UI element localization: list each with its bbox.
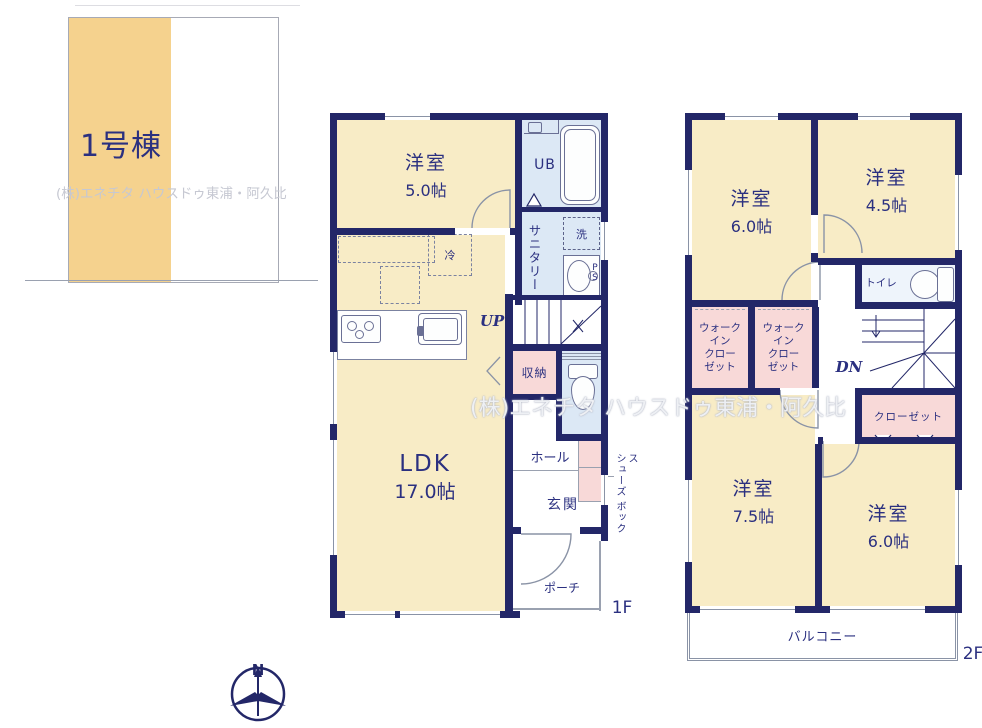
room-size: 6.0帖 [868,528,909,552]
sanitary-text: サニタリー [525,224,544,292]
balcony-label: バルコニー [788,626,858,645]
washer-dashed-box: 洗 [563,217,600,250]
shoebox-label: シューズ ボックス [613,453,637,545]
wall [515,120,522,305]
toilet-text: トイレ [865,275,897,290]
ub-counter [524,120,559,134]
door-arc-se-room [823,441,859,477]
room-2f-wic2: ウォーク イン クロー ゼット [755,307,812,388]
stove-icon [341,315,381,343]
window [385,113,430,120]
window [400,611,500,618]
window [685,480,692,562]
wall [522,207,601,212]
room-1f-ldk [337,235,505,611]
floor-plan-page: 1号棟 (株)エネチタ ハウスドゥ東浦・阿久比 洋室 5.0帖 LDK 17.0… [0,0,982,728]
wall [811,120,818,215]
outer-wall-top [330,113,608,120]
north-label: N [252,661,265,679]
window [858,113,910,120]
wall [748,307,755,388]
window [725,113,778,120]
watermark-plans: (株)エネチタ ハウスドゥ東浦・阿久比 [470,390,846,422]
room-size: 7.5帖 [733,503,774,527]
fridge-label: 冷 [445,247,456,263]
room-name: 洋室 [867,499,909,526]
wic2-hanger-dashes [758,309,809,310]
wall [811,253,818,262]
shoebox-upper [578,437,603,469]
room-name: LDK [399,451,451,477]
window [955,490,962,565]
stairs-1f [513,300,601,344]
wall [815,444,822,606]
window [330,352,337,424]
ldk-label: LDK 17.0帖 [370,451,480,503]
wall [855,388,962,395]
wall [513,295,601,300]
cabinet-dashed-box [380,266,420,304]
wall [505,294,513,611]
porch-right-line [599,541,601,611]
compass-icon: N [221,660,296,726]
wall [818,437,823,444]
dn-label: DN [835,358,863,376]
room-size: 5.0帖 [405,177,446,201]
window [330,440,337,555]
entrance-door-arc [521,534,571,584]
shoebox-label-line1: シューズ [614,453,625,497]
ub-door-mark [526,193,542,208]
bathtub-icon [560,125,600,205]
wic1-hanger-dashes [695,309,745,310]
hall-label: ホール [526,448,574,464]
room-name: 洋室 [865,163,907,190]
room-name: 洋室 [732,474,774,501]
stairs-2f [862,309,955,388]
fridge-dashed-box: 冷 [428,234,472,276]
window [685,170,692,255]
room-name: 洋室 [730,184,772,211]
hall-text: ホール [530,447,569,466]
wall [812,307,819,388]
wall [337,228,455,235]
wall [855,265,862,302]
watermark-site: (株)エネチタ ハウスドゥ東浦・阿久比 [56,182,287,202]
window [955,175,962,250]
floor2-text: 2F [963,644,982,664]
room-2f-closet: クローゼット [862,395,955,437]
counter-dashed-box [338,236,435,263]
sanitary-label: サニタリー [526,215,542,300]
site-boundary-top-line [75,5,300,6]
building-number-label: 1号棟 [74,124,168,162]
storage-door-mark [486,356,500,386]
wall [510,228,515,235]
entrance-text: 玄関 [547,494,579,514]
wall [580,527,601,534]
toilet-tank-icon-2f [937,267,954,302]
site-boundary-bottom-line [25,280,318,281]
porch-bottom-line [513,608,601,610]
wall [692,300,818,307]
kitchen-sink-icon [418,313,462,345]
window [830,606,925,613]
toilet-label: トイレ [865,275,897,289]
toilet-window-hatch [562,351,601,361]
storage-label: 収納 [513,363,556,381]
wall [505,527,521,534]
floor1-plan: 洋室 5.0帖 LDK 17.0帖 冷 [330,113,608,618]
room-name: 洋室 [405,148,447,175]
wall [855,302,962,309]
floor2-label: 2F [959,644,982,664]
wall [556,434,601,441]
ub-text: UB [534,157,556,173]
balcony: バルコニー [687,613,958,661]
yoshitsu5-door-arc [472,190,510,228]
entrance-label: 玄関 [535,495,591,513]
site-plot-adjacent [171,17,279,283]
door-arc-nw-room [782,262,820,300]
storage-text: 収納 [521,364,547,381]
window [345,611,395,618]
up-label: UP [476,312,508,330]
wall [818,258,955,265]
floor2-plan: 洋室 6.0帖 洋室 4.5帖 トイレ DN ウォーク イン クロー [685,113,962,613]
room-size: 6.0帖 [731,213,772,237]
building-number-text: 1号棟 [80,121,162,165]
toilet-bowl-icon-2f [910,270,940,299]
pipe-space-label: P S [589,259,601,287]
window [700,606,795,613]
wall [859,437,962,444]
room-size: 4.5帖 [866,192,907,216]
washer-label: 洗 [576,226,587,242]
door-arc-ne-room [824,215,862,253]
room-size: 17.0帖 [394,477,455,504]
window [601,222,608,260]
floor1-label: 1F [608,598,636,618]
room-2f-wic1: ウォーク イン クロー ゼット [692,307,748,388]
floor1-text: 1F [612,598,633,618]
window [601,475,608,505]
